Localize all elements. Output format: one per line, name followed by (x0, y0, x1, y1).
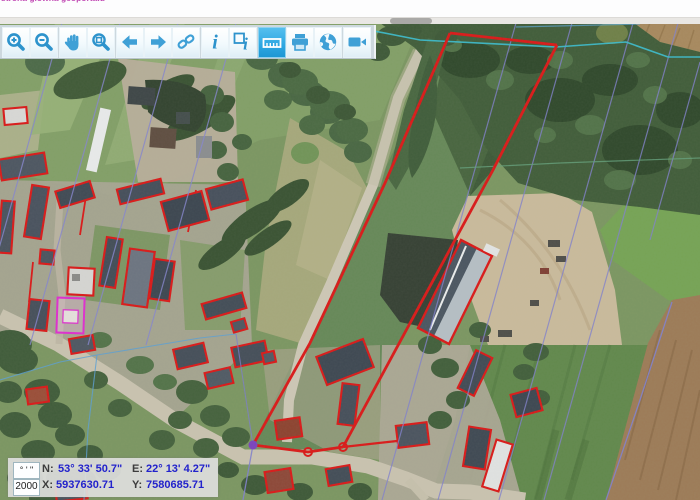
svg-text:i: i (243, 35, 248, 54)
svg-text:i: i (212, 32, 218, 54)
